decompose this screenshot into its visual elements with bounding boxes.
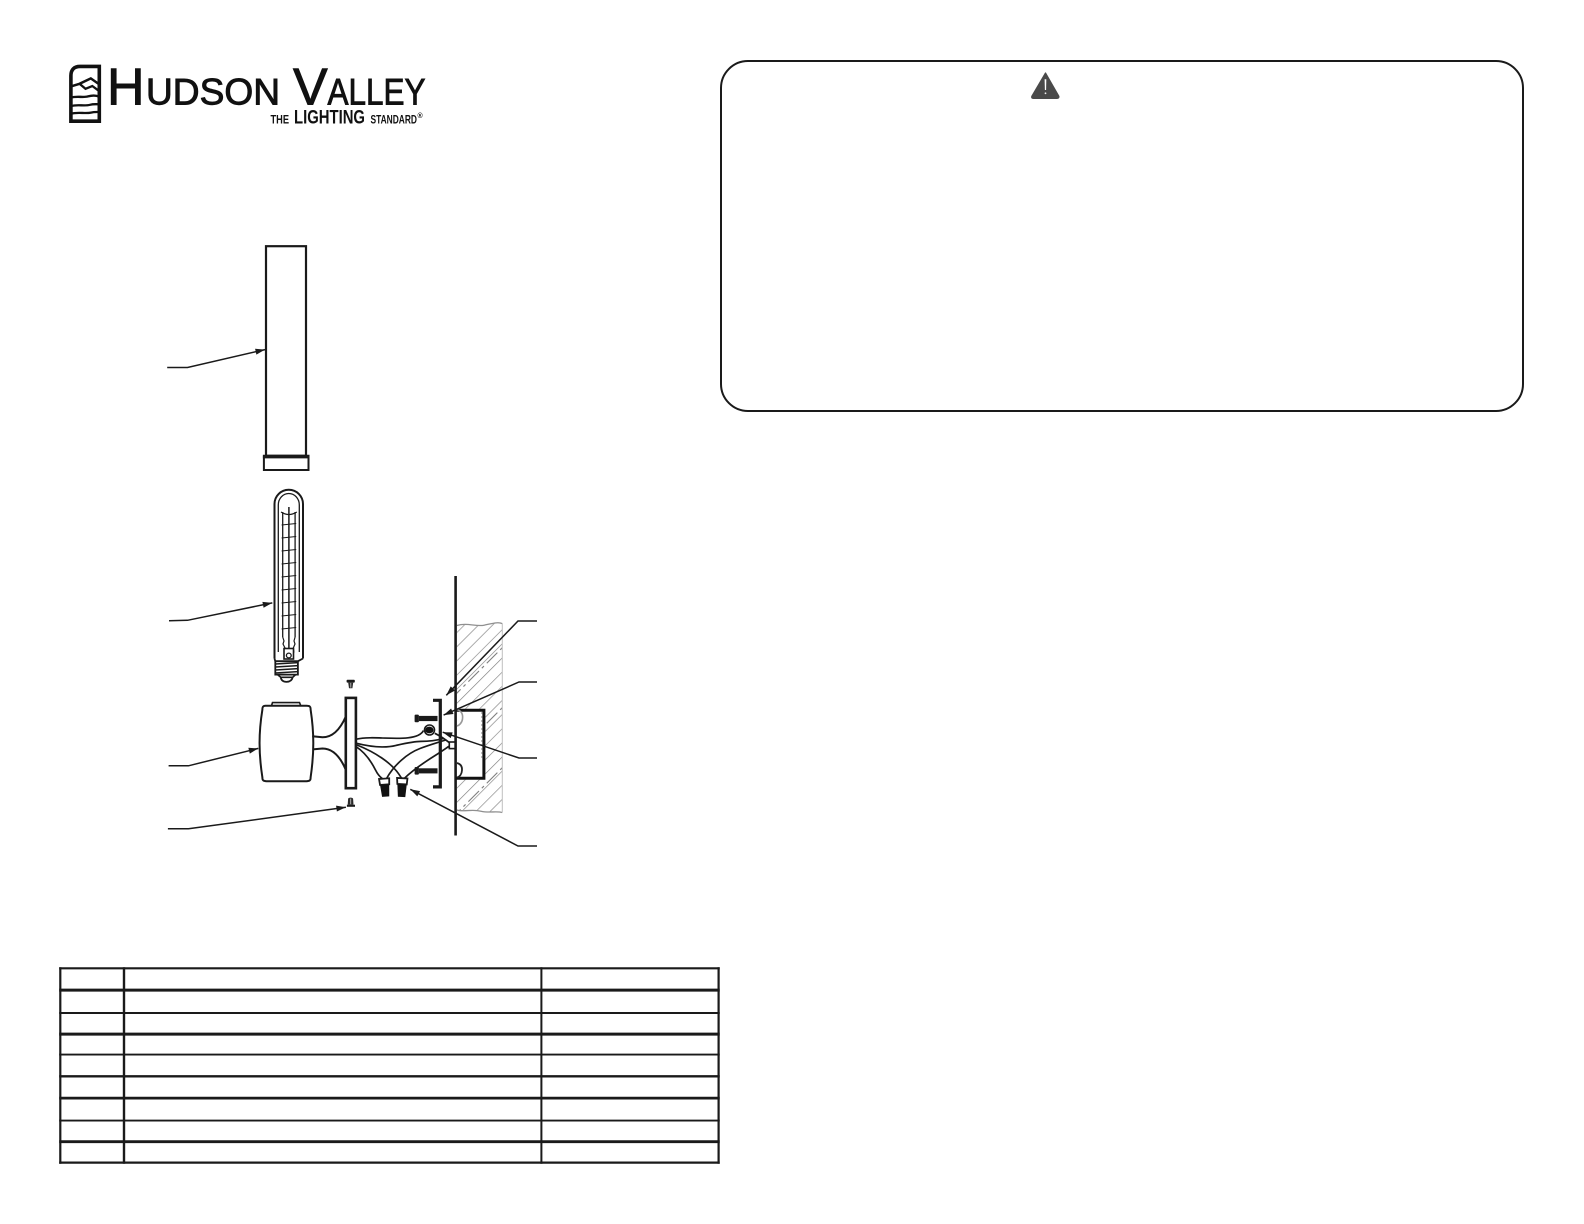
svg-text:H: H xyxy=(107,59,145,117)
svg-text:THE: THE xyxy=(271,113,290,127)
svg-text:ALLEY: ALLEY xyxy=(328,72,426,113)
svg-text:UDSON: UDSON xyxy=(146,72,280,113)
svg-text:®: ® xyxy=(418,112,424,120)
svg-text:STANDARD: STANDARD xyxy=(371,113,418,127)
svg-text:LIGHTING: LIGHTING xyxy=(294,108,365,129)
